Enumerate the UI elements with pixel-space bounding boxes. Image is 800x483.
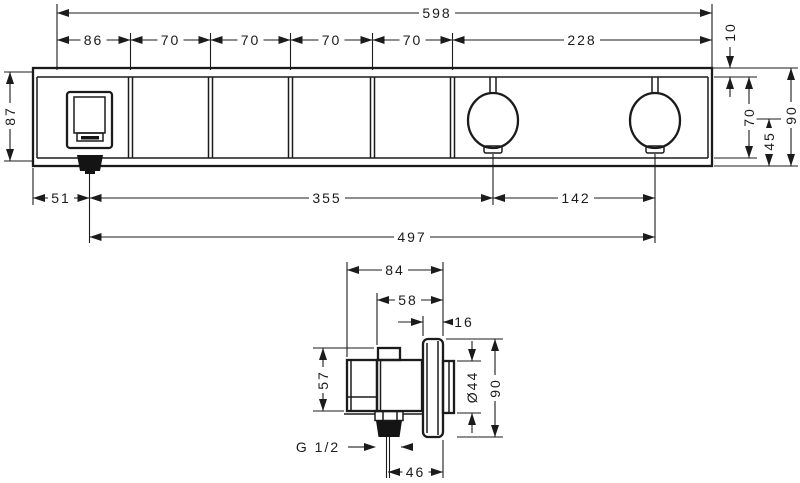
- thread-nipple: [376, 421, 402, 438]
- dim-label-57: 57: [315, 367, 331, 393]
- dim-label-598: 598: [419, 5, 455, 21]
- side-view-labels: 84 58 16 57 Ø44 90 G 1/2 46: [289, 262, 503, 480]
- hex-collar: [375, 412, 403, 421]
- svg-text:70: 70: [403, 32, 423, 48]
- dim-label-70-4: 70: [400, 32, 426, 48]
- svg-text:228: 228: [567, 32, 596, 48]
- svg-text:598: 598: [422, 5, 451, 21]
- technical-drawing: 598 86 70 70 70 70 228 10 87 70 45 90 51…: [0, 0, 800, 483]
- dim-label-90-right: 90: [783, 102, 799, 128]
- dim-label-228: 228: [564, 32, 600, 48]
- faceplate: [33, 68, 712, 166]
- dim-label-142: 142: [558, 190, 594, 206]
- side-view: 84 58 16 57 Ø44 90 G 1/2 46: [289, 262, 503, 480]
- mounting-body: [377, 360, 422, 411]
- technical-drawing-page: 598 86 70 70 70 70 228 10 87 70 45 90 51…: [0, 0, 800, 483]
- svg-text:16: 16: [454, 314, 474, 330]
- dim-label-58: 58: [395, 292, 421, 308]
- dim-label-g12: G 1/2: [289, 439, 347, 455]
- outlet-module-side: [344, 339, 454, 437]
- faceplate-dividers: [129, 77, 455, 158]
- svg-text:57: 57: [315, 370, 331, 390]
- dim-label-355: 355: [309, 190, 345, 206]
- svg-text:10: 10: [722, 22, 738, 42]
- svg-text:90: 90: [783, 105, 799, 125]
- dim-label-70-3: 70: [319, 32, 345, 48]
- svg-text:87: 87: [2, 106, 18, 126]
- dim-label-d44: Ø44: [464, 367, 480, 407]
- svg-text:70: 70: [322, 32, 342, 48]
- body-top-step: [378, 348, 400, 360]
- wall-escutcheon: [423, 339, 443, 437]
- svg-text:Ø44: Ø44: [464, 371, 480, 403]
- svg-text:90: 90: [487, 378, 503, 398]
- svg-text:70: 70: [161, 32, 181, 48]
- dim-label-497: 497: [394, 229, 430, 245]
- svg-text:45: 45: [761, 131, 777, 151]
- svg-text:86: 86: [84, 32, 104, 48]
- dim-label-45: 45: [761, 128, 777, 154]
- dim-label-70-1: 70: [158, 32, 184, 48]
- dim-label-86: 86: [81, 32, 107, 48]
- svg-text:497: 497: [397, 229, 426, 245]
- svg-text:70: 70: [241, 32, 261, 48]
- dim-label-46: 46: [403, 464, 429, 480]
- dim-label-16: 16: [453, 314, 475, 330]
- svg-text:46: 46: [406, 464, 426, 480]
- svg-text:G 1/2: G 1/2: [296, 439, 340, 455]
- top-view: 598 86 70 70 70 70 228 10 87 70 45 90 51…: [2, 4, 799, 245]
- svg-text:355: 355: [312, 190, 341, 206]
- dim-label-10: 10: [722, 19, 738, 45]
- svg-text:84: 84: [385, 262, 405, 278]
- dim-label-84: 84: [382, 262, 408, 278]
- dim-label-87: 87: [2, 103, 18, 129]
- dim-label-70-right: 70: [741, 104, 757, 130]
- aerator-nozzle: [77, 155, 103, 171]
- svg-text:142: 142: [561, 190, 590, 206]
- svg-text:51: 51: [51, 190, 71, 206]
- svg-text:58: 58: [398, 292, 418, 308]
- dim-label-51: 51: [48, 190, 74, 206]
- dim-label-90-side: 90: [487, 375, 503, 401]
- svg-text:70: 70: [741, 107, 757, 127]
- dim-label-70-2: 70: [238, 32, 264, 48]
- thermostat-knob-left: [468, 77, 518, 153]
- outlet-spout-front: [67, 92, 112, 174]
- thermostat-knob-right: [630, 77, 680, 153]
